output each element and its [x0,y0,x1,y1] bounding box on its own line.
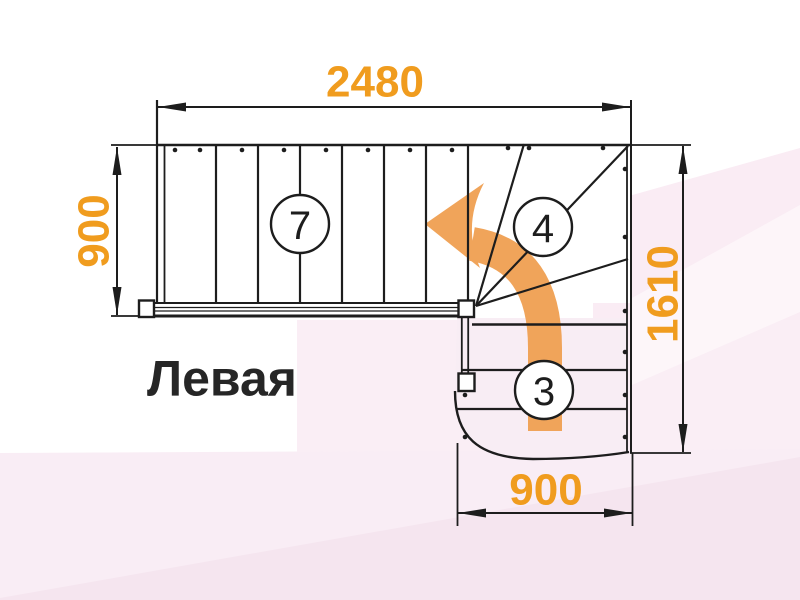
step-dot [601,146,606,151]
dim-left-label: 900 [69,194,118,267]
dim-bottom-label: 900 [509,465,582,514]
dim-arrowhead [602,103,630,112]
dim-right-label: 1610 [638,245,687,343]
newel-post [459,301,475,318]
step-dot [173,148,178,153]
upper-steps-count: 7 [289,204,311,248]
dim-top-label: 2480 [326,57,424,106]
lower-steps-count: 3 [533,370,555,414]
dim-arrowhead [679,146,688,174]
step-dot [623,309,628,314]
newel-post [459,374,475,392]
drawing-type-label: Левая [147,351,297,407]
step-dot [282,148,287,153]
step-dot [506,146,511,151]
step-dot [366,148,371,153]
winder-steps-count: 4 [532,207,554,251]
step-dot [527,146,532,151]
step-dot [623,435,628,440]
step-dot [408,148,413,153]
step-dot [623,235,628,240]
staircase-plan-drawing: 7 4 3 2480 900 1610 900 Левая [0,0,800,600]
step-dot [450,148,455,153]
newel-post [139,301,154,318]
dim-arrowhead [113,287,122,315]
step-dot [240,148,245,153]
step-dot [463,393,468,398]
step-dot [324,148,329,153]
dim-arrowhead [113,147,122,175]
step-dot [623,393,628,398]
staircase-plan-canvas: 7 4 3 2480 900 1610 900 Левая [0,0,800,600]
step-dot [463,435,468,440]
dim-arrowhead [158,103,186,112]
step-dot [198,148,203,153]
step-dot [623,350,628,355]
step-dot [623,167,628,172]
